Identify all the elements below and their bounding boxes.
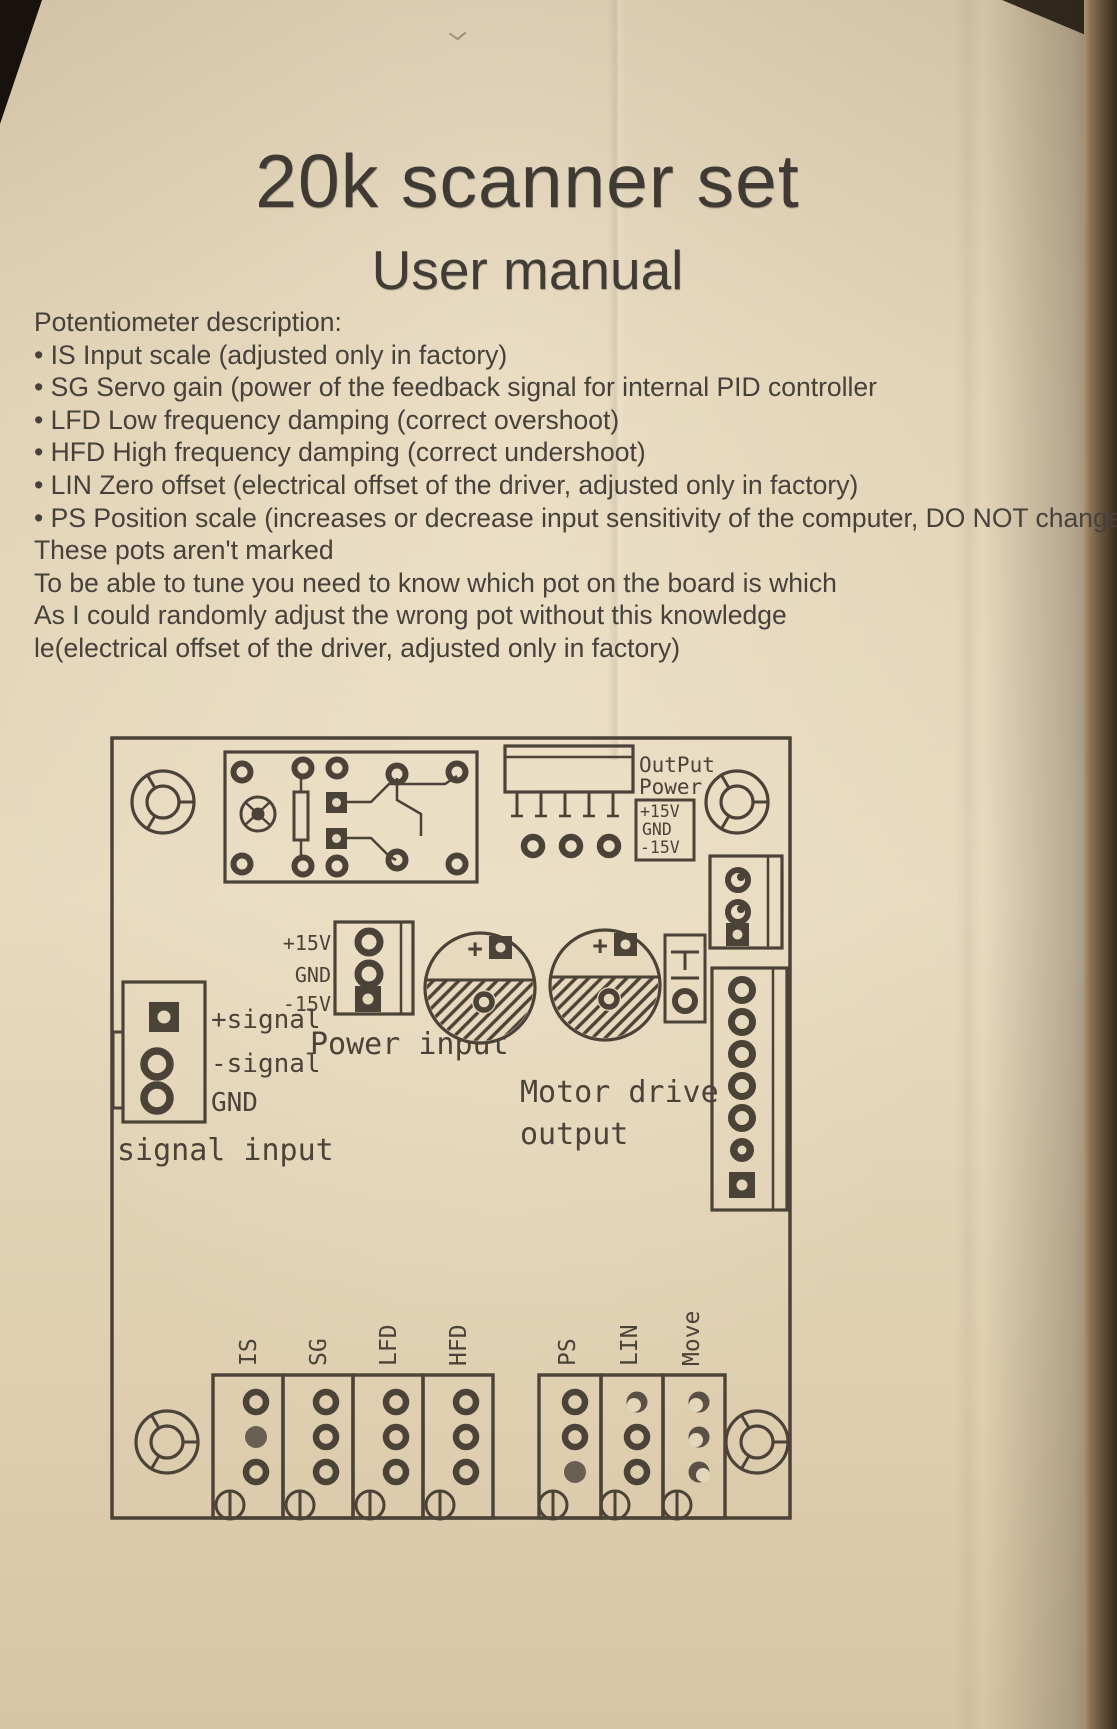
description-line: As I could randomly adjust the wrong pot…: [34, 599, 1104, 632]
pot-label-sg: SG: [306, 1338, 332, 1366]
mounting-hole-top-left: [132, 771, 194, 833]
signal-pin-minus: -signal: [211, 1049, 321, 1079]
description-block: Potentiometer description: • IS Input sc…: [34, 306, 1104, 665]
right-small-connector: [710, 856, 782, 948]
pcb-diagram: OutPut Power +15V GND -15V +15V GND -15V…: [105, 730, 805, 1535]
mounting-hole-bottom-left: [136, 1411, 198, 1473]
description-line: • LIN Zero offset (electrical offset of …: [34, 469, 1104, 502]
small-component: [665, 935, 705, 1022]
description-heading: Potentiometer description:: [34, 306, 1104, 339]
output-pin-gnd: GND: [642, 820, 672, 839]
motor-output-connector: [712, 968, 787, 1210]
power-input-pin-labels: +15V GND -15V: [283, 931, 331, 1016]
square-pads: [326, 792, 347, 849]
output-power-block: OutPut Power +15V GND -15V: [636, 753, 715, 860]
power-pin-p15: +15V: [283, 931, 331, 955]
capacitor-plus-mark: +: [592, 931, 608, 961]
mounting-hole-bottom-right: [726, 1411, 788, 1473]
pot-screws-left: [216, 1491, 454, 1519]
description-line: • LFD Low frequency damping (correct ove…: [34, 404, 1104, 437]
pot-label-is: IS: [236, 1338, 262, 1366]
output-pin-m15: -15V: [640, 838, 680, 857]
signal-input-pin-labels: +signal -signal GND: [211, 1005, 321, 1118]
pot-group-right: [539, 1375, 725, 1519]
scanned-manual-page: { "page": { "title": "20k scanner set", …: [0, 0, 1117, 1729]
pot-label-lin: LIN: [617, 1324, 643, 1366]
output-pin-p15: +15V: [640, 802, 680, 821]
pot-label-move: Move: [679, 1311, 705, 1366]
signal-pin-plus: +signal: [211, 1005, 321, 1035]
top-connector: [505, 746, 633, 855]
description-line: • SG Servo gain (power of the feedback s…: [34, 371, 1104, 404]
capacitor-plus-mark: +: [467, 934, 483, 964]
pot-label-ps: PS: [555, 1338, 581, 1366]
page-title: 20k scanner set: [0, 138, 1055, 224]
resistor-symbol: [294, 774, 308, 860]
power-pin-gnd: GND: [295, 963, 331, 987]
potentiometer-symbol: [241, 797, 275, 831]
pot-screws-right: [539, 1491, 691, 1519]
description-line: • HFD High frequency damping (correct un…: [34, 436, 1104, 469]
signal-pin-gnd: GND: [211, 1088, 258, 1118]
output-power-label-2: Power: [639, 775, 702, 799]
pot-label-lfd: LFD: [376, 1324, 402, 1366]
motor-output-label-1: Motor drive: [520, 1075, 719, 1110]
scan-edge-shadow: [1084, 0, 1117, 1729]
signal-input-connector: [113, 982, 205, 1122]
connector-pins: [511, 792, 619, 816]
description-line: These pots aren't marked: [34, 534, 1104, 567]
description-line: • PS Position scale (increases or decrea…: [34, 502, 1104, 535]
description-line: le(electrical offset of the driver, adju…: [34, 632, 1104, 665]
pot-label-hfd: HFD: [446, 1324, 472, 1366]
capacitor-2: +: [548, 930, 662, 1043]
component-trace-block: [225, 752, 477, 882]
motor-output-label-2: output: [520, 1117, 628, 1152]
pot-group-left: [213, 1375, 493, 1519]
signal-input-label: signal input: [117, 1133, 334, 1168]
page-subtitle: User manual: [0, 238, 1055, 302]
pot-labels: IS SG LFD HFD PS LIN Move: [236, 1311, 705, 1366]
mounting-hole-top-right: [706, 771, 768, 833]
power-input-connector: [335, 922, 413, 1014]
output-power-label-1: OutPut: [639, 753, 715, 777]
description-line: • IS Input scale (adjusted only in facto…: [34, 339, 1104, 372]
description-line: To be able to tune you need to know whic…: [34, 567, 1104, 600]
pcb-diagram-svg: OutPut Power +15V GND -15V +15V GND -15V…: [105, 730, 805, 1530]
